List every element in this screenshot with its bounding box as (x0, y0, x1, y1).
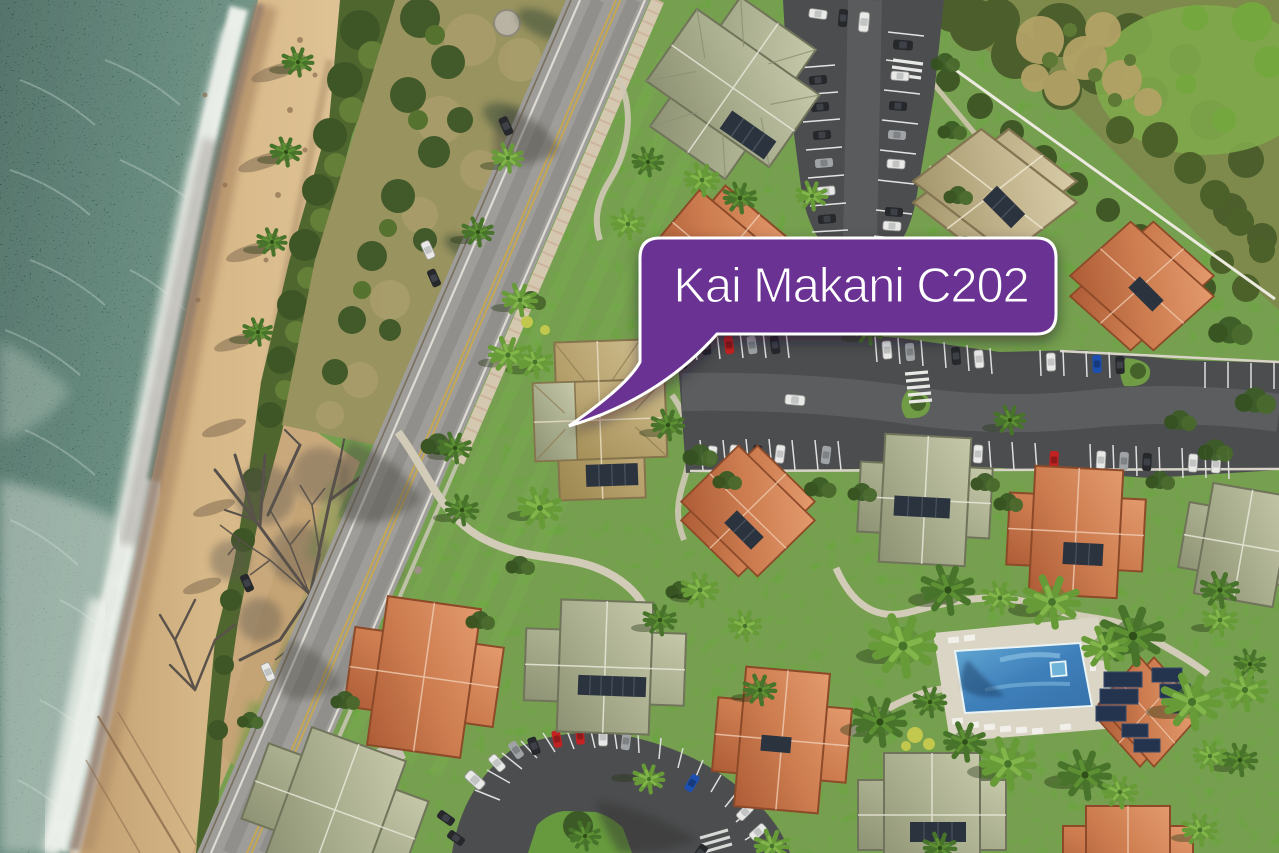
svg-text:Kai Makani C202: Kai Makani C202 (673, 259, 1028, 313)
